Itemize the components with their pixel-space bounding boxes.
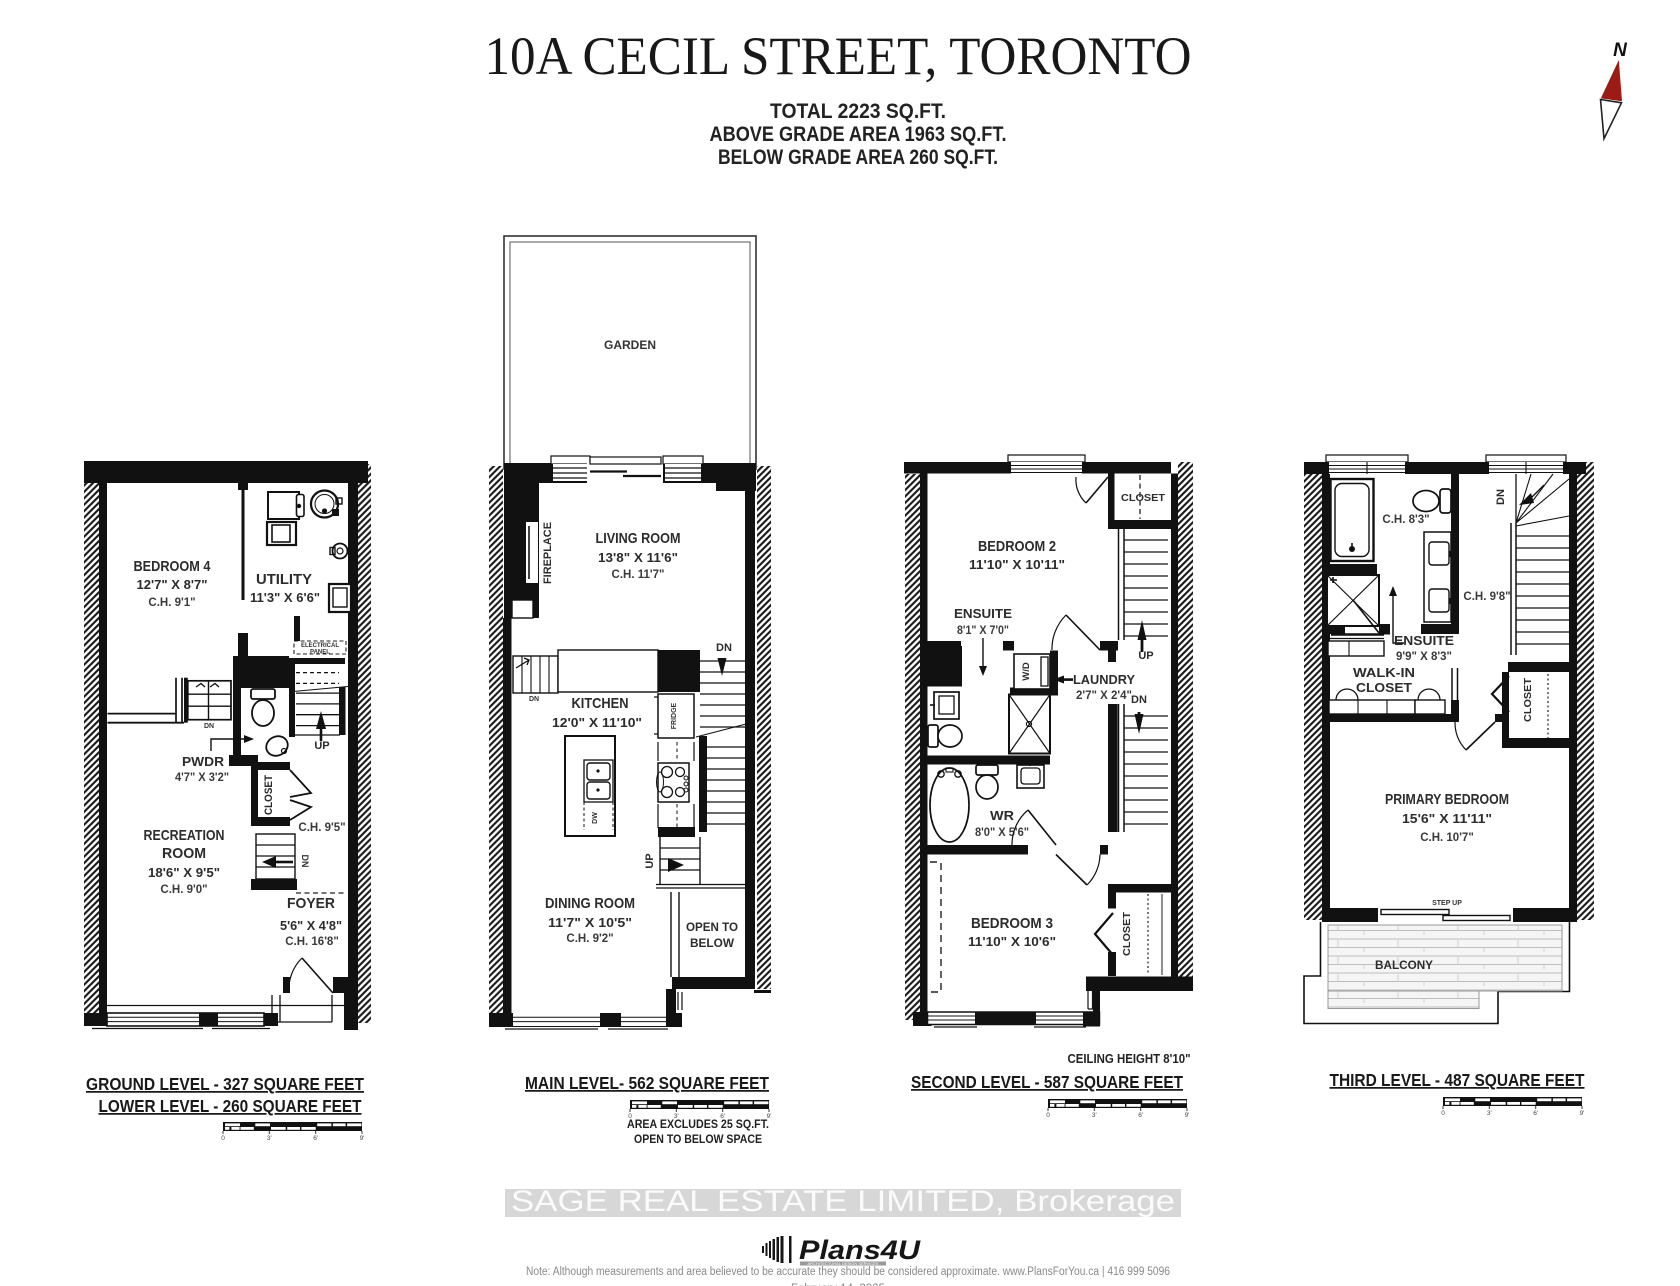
svg-text:10A CECIL STREET, TORONTO: 10A CECIL STREET, TORONTO — [485, 26, 1192, 86]
svg-text:12'7" X 8'7": 12'7" X 8'7" — [137, 577, 208, 592]
svg-text:OPEN TO: OPEN TO — [686, 920, 738, 934]
svg-text:ENSUITE: ENSUITE — [1394, 633, 1454, 648]
svg-text:C.H. 9'5": C.H. 9'5" — [298, 822, 345, 834]
svg-text:15'6" X 11'11": 15'6" X 11'11" — [1402, 811, 1492, 826]
svg-text:CLOSET: CLOSET — [1522, 677, 1534, 722]
svg-text:DN: DN — [529, 696, 539, 703]
svg-text:6': 6' — [313, 1135, 318, 1142]
svg-text:LIVING ROOM: LIVING ROOM — [596, 530, 681, 547]
svg-text:UTILITY: UTILITY — [256, 571, 312, 588]
svg-text:0: 0 — [628, 1113, 632, 1120]
svg-text:BALCONY: BALCONY — [1375, 960, 1433, 972]
svg-text:CLOSET: CLOSET — [1356, 680, 1412, 695]
svg-text:11'10" X 10'6": 11'10" X 10'6" — [968, 934, 1056, 949]
svg-text:9'9" X 8'3": 9'9" X 8'3" — [1396, 651, 1452, 663]
svg-text:18'6" X 9'5": 18'6" X 9'5" — [148, 865, 220, 880]
svg-text:11'3" X 6'6": 11'3" X 6'6" — [250, 590, 320, 605]
svg-text:Note: Although measurements an: Note: Although measurements and area bel… — [526, 1266, 1170, 1278]
svg-text:SECOND LEVEL - 587 SQUARE FEET: SECOND LEVEL - 587 SQUARE FEET — [911, 1072, 1183, 1092]
svg-text:N: N — [1613, 40, 1628, 61]
svg-text:4'7" X 3'2": 4'7" X 3'2" — [175, 772, 229, 784]
svg-text:0: 0 — [1046, 1112, 1050, 1119]
svg-text:BEDROOM 2: BEDROOM 2 — [978, 538, 1056, 555]
svg-text:BEDROOM 3: BEDROOM 3 — [971, 915, 1053, 932]
svg-text:C.H. 16'8": C.H. 16'8" — [285, 936, 339, 948]
svg-text:DINING ROOM: DINING ROOM — [545, 895, 635, 912]
svg-text:CEILING HEIGHT 8'10": CEILING HEIGHT 8'10" — [1068, 1052, 1191, 1066]
svg-text:AREA EXCLUDES 25 SQ.FT.: AREA EXCLUDES 25 SQ.FT. — [627, 1117, 769, 1131]
svg-text:8'0" X 5'6": 8'0" X 5'6" — [975, 827, 1029, 839]
svg-text:PWDR: PWDR — [182, 754, 225, 769]
svg-text:WALK-IN: WALK-IN — [1353, 665, 1415, 680]
svg-text:11'7" X 10'5": 11'7" X 10'5" — [548, 915, 632, 930]
svg-text:LAUNDRY: LAUNDRY — [1073, 672, 1135, 687]
svg-text:C.H. 9'1": C.H. 9'1" — [148, 597, 195, 609]
svg-text:MAIN LEVEL- 562 SQUARE FEET: MAIN LEVEL- 562 SQUARE FEET — [525, 1073, 769, 1093]
svg-text:RECREATION: RECREATION — [144, 827, 225, 844]
svg-text:PRIMARY BEDROOM: PRIMARY BEDROOM — [1385, 791, 1509, 808]
svg-text:2'7" X 2'4": 2'7" X 2'4" — [1076, 690, 1132, 702]
svg-text:BELOW: BELOW — [690, 936, 735, 950]
svg-text:DN: DN — [1131, 694, 1147, 706]
svg-text:BELOW GRADE AREA 260 SQ.FT.: BELOW GRADE AREA 260 SQ.FT. — [718, 146, 998, 169]
svg-text:LOWER LEVEL - 260 SQUARE FEET: LOWER LEVEL - 260 SQUARE FEET — [99, 1096, 362, 1116]
svg-text:C.H. 9'2": C.H. 9'2" — [566, 933, 613, 945]
svg-text:9': 9' — [767, 1113, 772, 1120]
svg-text:UP: UP — [1138, 650, 1153, 662]
svg-text:BEDROOM 4: BEDROOM 4 — [134, 558, 212, 575]
svg-text:DN: DN — [1495, 489, 1507, 505]
svg-text:FRIDGE: FRIDGE — [671, 702, 678, 729]
svg-text:0: 0 — [1441, 1110, 1445, 1117]
svg-text:12'0" X 11'10": 12'0" X 11'10" — [552, 715, 642, 730]
svg-text:PANEL: PANEL — [310, 650, 330, 656]
svg-text:CLOSET: CLOSET — [263, 775, 275, 815]
svg-text:6': 6' — [1533, 1110, 1538, 1117]
svg-text:6': 6' — [1138, 1112, 1143, 1119]
svg-text:GROUND LEVEL - 327 SQUARE FEET: GROUND LEVEL - 327 SQUARE FEET — [86, 1074, 364, 1094]
svg-text:WR: WR — [990, 808, 1015, 823]
svg-text:0: 0 — [221, 1135, 225, 1142]
svg-text:DN: DN — [204, 723, 214, 730]
svg-text:3': 3' — [1092, 1112, 1097, 1119]
svg-text:3': 3' — [267, 1135, 272, 1142]
svg-text:FIREPLACE: FIREPLACE — [542, 522, 554, 584]
svg-text:CLOSET: CLOSET — [1121, 911, 1133, 956]
svg-text:STEP UP: STEP UP — [1432, 900, 1462, 907]
svg-text:9': 9' — [1580, 1110, 1585, 1117]
svg-text:UP: UP — [644, 853, 656, 868]
svg-text:11'10" X 10'11": 11'10" X 10'11" — [969, 557, 1065, 572]
svg-text:C.H. 10'7": C.H. 10'7" — [1420, 832, 1474, 844]
svg-text:3': 3' — [674, 1113, 679, 1120]
svg-text:DN: DN — [300, 855, 310, 868]
svg-text:OPEN TO BELOW SPACE: OPEN TO BELOW SPACE — [634, 1132, 762, 1146]
svg-text:SAGE REAL ESTATE LIMITED, Brok: SAGE REAL ESTATE LIMITED, Brokerage — [511, 1185, 1175, 1218]
svg-text:9': 9' — [360, 1135, 365, 1142]
svg-text:GARDEN: GARDEN — [604, 340, 656, 352]
svg-text:FOYER: FOYER — [287, 895, 335, 912]
svg-text:ELECTRICAL: ELECTRICAL — [301, 643, 339, 649]
svg-text:KITCHEN: KITCHEN — [572, 695, 629, 712]
svg-text:UP: UP — [314, 740, 329, 752]
svg-text:ROOM: ROOM — [162, 845, 206, 862]
svg-text:TOTAL 2223 SQ.FT.: TOTAL 2223 SQ.FT. — [770, 100, 946, 123]
svg-text:3': 3' — [1487, 1110, 1492, 1117]
svg-text:DN: DN — [716, 642, 732, 654]
svg-text:9': 9' — [1185, 1112, 1190, 1119]
svg-text:13'8" X 11'6": 13'8" X 11'6" — [598, 550, 678, 565]
svg-text:C.H. 8'3": C.H. 8'3" — [1382, 514, 1429, 526]
svg-text:C.H. 9'8": C.H. 9'8" — [1463, 591, 1510, 603]
svg-text:ABOVE GRADE AREA 1963 SQ.FT.: ABOVE GRADE AREA 1963 SQ.FT. — [710, 123, 1007, 146]
svg-text:C.H. 9'0": C.H. 9'0" — [160, 884, 207, 896]
svg-text:DW: DW — [592, 812, 599, 824]
svg-text:W/D: W/D — [1021, 662, 1032, 681]
svg-text:ENSUITE: ENSUITE — [954, 606, 1012, 621]
svg-text:5'6" X 4'8": 5'6" X 4'8" — [280, 918, 342, 933]
svg-text:CLOSET: CLOSET — [1121, 492, 1166, 504]
svg-text:8'1" X 7'0": 8'1" X 7'0" — [957, 625, 1009, 637]
svg-text:C.H. 11'7": C.H. 11'7" — [612, 569, 665, 581]
svg-text:6': 6' — [720, 1113, 725, 1120]
svg-text:THIRD LEVEL - 487 SQUARE FEET: THIRD LEVEL - 487 SQUARE FEET — [1330, 1070, 1585, 1090]
